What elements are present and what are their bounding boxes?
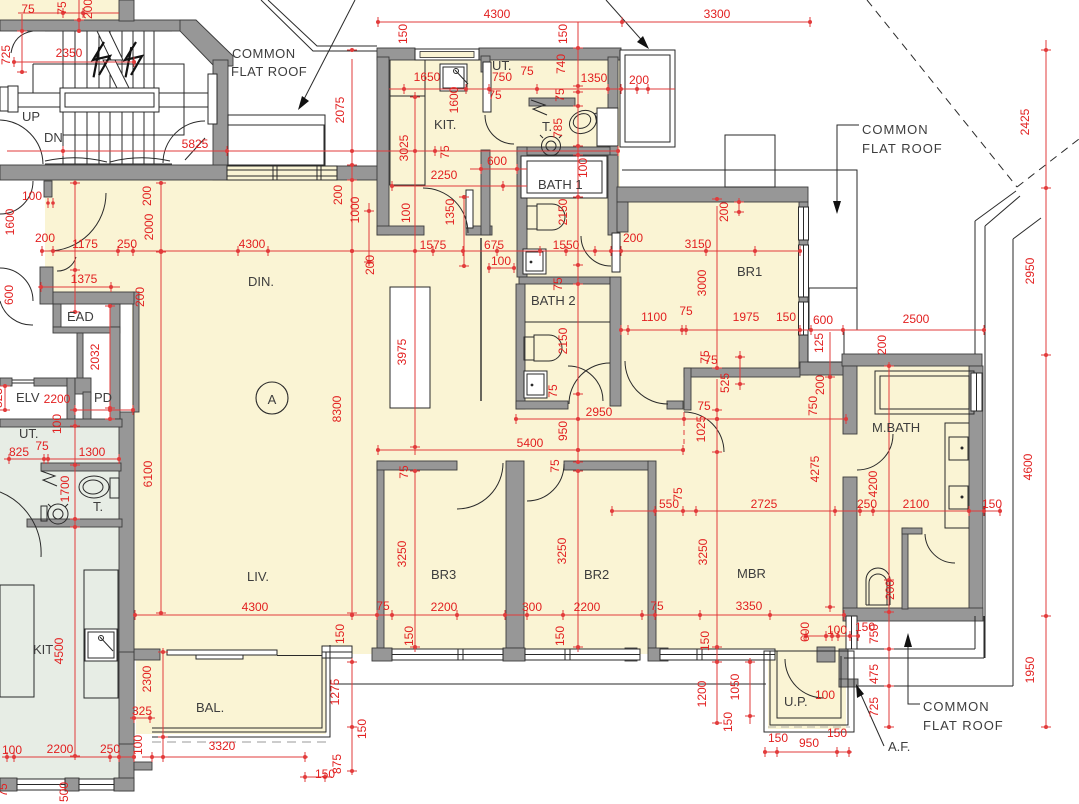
- svg-text:150: 150: [982, 497, 1002, 511]
- svg-text:3320: 3320: [209, 739, 236, 753]
- svg-text:200: 200: [331, 185, 345, 205]
- svg-text:1000: 1000: [348, 196, 362, 223]
- svg-text:75: 75: [0, 783, 10, 797]
- svg-text:M.BATH: M.BATH: [872, 420, 920, 435]
- svg-text:100: 100: [491, 254, 511, 268]
- svg-text:825: 825: [9, 445, 29, 459]
- svg-text:75: 75: [551, 277, 565, 291]
- svg-text:150: 150: [698, 631, 712, 651]
- svg-text:150: 150: [553, 626, 567, 646]
- svg-text:A: A: [268, 392, 277, 407]
- svg-text:150: 150: [827, 726, 847, 740]
- svg-text:3250: 3250: [696, 538, 710, 565]
- svg-text:4275: 4275: [808, 455, 822, 482]
- svg-text:5400: 5400: [517, 436, 544, 450]
- svg-text:3150: 3150: [685, 237, 712, 251]
- svg-text:4200: 4200: [866, 470, 880, 497]
- svg-text:U.P.: U.P.: [784, 694, 808, 709]
- svg-text:75: 75: [697, 399, 711, 413]
- svg-text:COMMON: COMMON: [862, 122, 929, 137]
- svg-text:BR1: BR1: [737, 264, 762, 279]
- svg-text:BR2: BR2: [584, 567, 609, 582]
- svg-text:BR3: BR3: [431, 567, 456, 582]
- svg-text:525: 525: [718, 373, 732, 393]
- svg-text:1650: 1650: [414, 70, 441, 84]
- svg-text:FLAT ROOF: FLAT ROOF: [862, 141, 943, 156]
- svg-text:750: 750: [867, 624, 881, 644]
- svg-text:600: 600: [798, 622, 812, 642]
- svg-text:250: 250: [100, 742, 120, 756]
- svg-text:125: 125: [812, 333, 826, 353]
- svg-text:785: 785: [551, 118, 565, 138]
- svg-text:4600: 4600: [1021, 453, 1035, 480]
- svg-text:100: 100: [576, 158, 590, 178]
- svg-text:825: 825: [0, 388, 5, 408]
- svg-text:75: 75: [376, 599, 390, 613]
- svg-text:725: 725: [0, 45, 13, 65]
- svg-text:1350: 1350: [443, 198, 457, 225]
- svg-text:950: 950: [799, 736, 819, 750]
- svg-text:150: 150: [396, 24, 410, 44]
- svg-text:200: 200: [140, 186, 154, 206]
- svg-text:2725: 2725: [751, 497, 778, 511]
- svg-text:600: 600: [487, 154, 507, 168]
- svg-text:75: 75: [698, 350, 712, 364]
- svg-text:ELV: ELV: [16, 390, 40, 405]
- svg-text:200: 200: [717, 202, 731, 222]
- svg-text:2950: 2950: [1023, 257, 1037, 284]
- svg-text:75: 75: [650, 599, 664, 613]
- svg-text:1350: 1350: [581, 71, 608, 85]
- svg-text:600: 600: [813, 313, 833, 327]
- svg-text:KIT: KIT: [33, 642, 53, 657]
- svg-text:UT.: UT.: [492, 58, 512, 73]
- svg-text:200: 200: [133, 287, 147, 307]
- svg-text:75: 75: [55, 1, 69, 15]
- svg-text:2950: 2950: [586, 405, 613, 419]
- svg-text:T.: T.: [542, 119, 552, 134]
- svg-text:2032: 2032: [88, 343, 102, 370]
- svg-text:1200: 1200: [695, 680, 709, 707]
- svg-text:1700: 1700: [58, 475, 72, 502]
- svg-text:COMMON: COMMON: [923, 699, 990, 714]
- svg-text:1175: 1175: [72, 237, 98, 251]
- svg-text:675: 675: [484, 238, 504, 252]
- svg-text:725: 725: [867, 697, 881, 717]
- svg-text:4300: 4300: [484, 7, 511, 21]
- svg-text:8300: 8300: [330, 395, 344, 422]
- svg-text:EAD: EAD: [67, 309, 94, 324]
- svg-text:200: 200: [363, 255, 377, 275]
- svg-text:1050: 1050: [728, 673, 742, 700]
- svg-text:740: 740: [554, 54, 568, 74]
- svg-text:100: 100: [50, 414, 64, 434]
- svg-text:FLAT ROOF: FLAT ROOF: [231, 64, 307, 79]
- svg-text:475: 475: [867, 664, 881, 684]
- svg-text:950: 950: [556, 421, 570, 441]
- svg-text:200: 200: [875, 335, 889, 355]
- svg-text:1300: 1300: [79, 445, 106, 459]
- svg-text:75: 75: [553, 88, 567, 102]
- svg-text:100: 100: [815, 688, 835, 702]
- svg-text:250: 250: [117, 237, 137, 251]
- svg-text:DN: DN: [44, 130, 63, 145]
- svg-text:1375: 1375: [71, 272, 98, 286]
- svg-text:75: 75: [35, 439, 49, 453]
- svg-text:100: 100: [22, 189, 42, 203]
- svg-text:MBR: MBR: [737, 566, 766, 581]
- svg-text:4300: 4300: [242, 600, 269, 614]
- svg-text:3250: 3250: [555, 537, 569, 564]
- svg-text:UT.: UT.: [19, 426, 39, 441]
- svg-text:1975: 1975: [733, 310, 760, 324]
- svg-text:2500: 2500: [903, 312, 930, 326]
- svg-text:75: 75: [548, 459, 562, 473]
- svg-text:3300: 3300: [704, 7, 731, 21]
- svg-text:300: 300: [522, 600, 542, 614]
- svg-text:150: 150: [355, 719, 369, 739]
- svg-text:100: 100: [2, 743, 22, 757]
- svg-text:200: 200: [623, 231, 643, 245]
- svg-text:1025: 1025: [694, 415, 708, 442]
- svg-text:75: 75: [488, 88, 502, 102]
- svg-text:150: 150: [333, 624, 347, 644]
- svg-text:BATH 2: BATH 2: [531, 293, 576, 308]
- svg-text:3025: 3025: [397, 134, 411, 161]
- svg-text:200: 200: [629, 73, 649, 87]
- svg-text:2250: 2250: [431, 168, 458, 182]
- svg-text:1100: 1100: [641, 310, 667, 324]
- svg-text:A.F.: A.F.: [888, 739, 910, 754]
- svg-text:150: 150: [721, 712, 735, 732]
- svg-text:PD: PD: [94, 390, 112, 405]
- svg-text:150: 150: [776, 310, 796, 324]
- svg-text:75: 75: [438, 145, 452, 159]
- svg-text:2200: 2200: [431, 600, 458, 614]
- svg-text:75: 75: [671, 487, 685, 501]
- svg-text:200: 200: [813, 375, 827, 395]
- svg-text:150: 150: [556, 24, 570, 44]
- svg-text:KIT.: KIT.: [434, 117, 456, 132]
- svg-text:2100: 2100: [903, 497, 930, 511]
- svg-text:FLAT ROOF: FLAT ROOF: [923, 718, 1004, 733]
- svg-text:2300: 2300: [140, 665, 154, 692]
- svg-text:75: 75: [679, 304, 693, 318]
- svg-text:150: 150: [768, 731, 788, 745]
- svg-text:1950: 1950: [1023, 656, 1037, 683]
- svg-text:200: 200: [883, 580, 897, 600]
- svg-text:4300: 4300: [239, 237, 266, 251]
- svg-text:75: 75: [546, 384, 560, 398]
- svg-text:BATH 1: BATH 1: [538, 177, 583, 192]
- svg-text:75: 75: [397, 465, 411, 479]
- svg-text:2350: 2350: [56, 46, 83, 60]
- svg-text:1600: 1600: [447, 86, 461, 113]
- svg-text:DIN.: DIN.: [248, 274, 274, 289]
- svg-text:3350: 3350: [736, 599, 763, 613]
- svg-text:T.: T.: [93, 499, 103, 514]
- svg-text:1550: 1550: [553, 238, 580, 252]
- svg-text:500: 500: [57, 782, 71, 802]
- svg-text:2150: 2150: [556, 327, 570, 354]
- svg-text:75: 75: [21, 2, 35, 16]
- svg-text:100: 100: [827, 623, 847, 637]
- svg-text:150: 150: [402, 626, 416, 646]
- svg-text:3250: 3250: [395, 540, 409, 567]
- svg-text:1275: 1275: [328, 678, 342, 705]
- svg-text:4500: 4500: [52, 637, 66, 664]
- svg-text:UP: UP: [22, 109, 40, 124]
- svg-text:875: 875: [330, 754, 344, 774]
- svg-text:2200: 2200: [47, 742, 74, 756]
- svg-text:5825: 5825: [182, 137, 209, 151]
- svg-text:200: 200: [35, 231, 55, 245]
- svg-text:100: 100: [399, 203, 413, 223]
- svg-text:2000: 2000: [142, 213, 156, 240]
- svg-text:2200: 2200: [44, 392, 71, 406]
- svg-text:200: 200: [81, 0, 95, 19]
- svg-text:6100: 6100: [141, 460, 155, 487]
- svg-text:75: 75: [520, 64, 534, 78]
- svg-text:1600: 1600: [3, 208, 17, 235]
- svg-text:100: 100: [131, 735, 145, 755]
- svg-text:LIV.: LIV.: [247, 569, 269, 584]
- svg-text:1575: 1575: [420, 238, 447, 252]
- svg-text:250: 250: [857, 497, 877, 511]
- svg-text:2200: 2200: [574, 600, 601, 614]
- svg-text:3975: 3975: [395, 338, 409, 365]
- svg-text:600: 600: [2, 285, 16, 305]
- svg-text:BAL.: BAL.: [196, 700, 224, 715]
- svg-text:2150: 2150: [556, 198, 570, 225]
- svg-text:COMMON: COMMON: [232, 46, 296, 61]
- svg-text:325: 325: [132, 704, 152, 718]
- svg-text:2425: 2425: [1018, 108, 1032, 135]
- svg-text:750: 750: [806, 396, 820, 416]
- svg-text:2075: 2075: [333, 96, 347, 123]
- svg-text:3000: 3000: [695, 269, 709, 296]
